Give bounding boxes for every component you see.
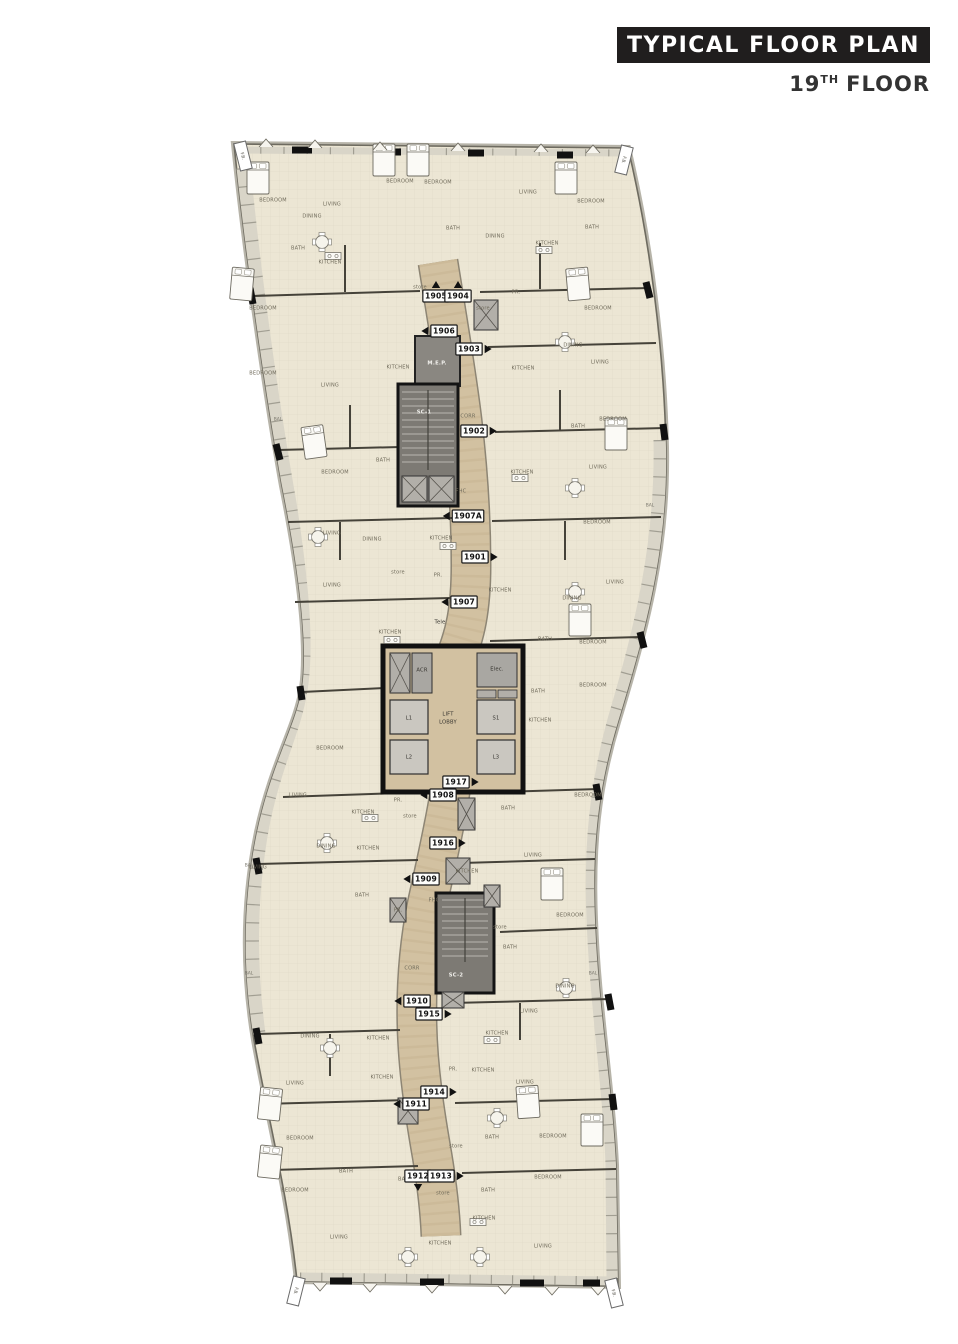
unit-number: 1902 xyxy=(463,427,485,436)
exterior-wall-chunk xyxy=(646,282,650,298)
room-label: KITCHEN xyxy=(485,1031,508,1037)
room-label: BEDROOM xyxy=(286,1136,314,1142)
room-label: BEDROOM xyxy=(249,306,277,312)
room-label: BAL xyxy=(245,971,254,977)
room-label: LIVING xyxy=(321,383,339,389)
room-label: KITCHEN xyxy=(535,241,558,247)
room-label: BEDROOM xyxy=(281,1188,309,1194)
balcony-chevron-bottom xyxy=(498,1286,512,1294)
room-label: LIVING xyxy=(516,1080,534,1086)
room-label: BEDROOM xyxy=(534,1175,562,1181)
bed-furniture xyxy=(569,604,591,636)
room-label: BATH xyxy=(585,225,599,231)
room-label: KITCHEN xyxy=(351,810,374,816)
room-label: store xyxy=(476,306,490,312)
room-label: KITCHEN xyxy=(386,365,409,371)
bed-furniture xyxy=(257,1087,282,1121)
room-label: LIVING xyxy=(591,360,609,366)
room-label: SC-1 xyxy=(417,410,432,416)
room-label: LIFT xyxy=(442,712,454,718)
room-label: BATH xyxy=(481,1188,495,1194)
room-label: BATH xyxy=(538,637,552,643)
room-label: KITCHEN xyxy=(528,718,551,724)
room-label: LIVING xyxy=(589,465,607,471)
exterior-wall-chunk xyxy=(276,444,280,460)
room-label: BEDROOM xyxy=(579,683,607,689)
room-label: PR. xyxy=(449,1067,458,1073)
room-label: SC-2 xyxy=(449,973,464,979)
unit-number: 1909 xyxy=(415,875,437,884)
room-label: BATH xyxy=(501,806,515,812)
kitchen-counter-furniture xyxy=(440,543,456,550)
room-label: BATH xyxy=(446,226,460,232)
room-label: KITCHEN xyxy=(429,536,452,542)
room-label: BEDROOM xyxy=(574,793,602,799)
room-label: LIVING xyxy=(323,583,341,589)
room-label: LIVING xyxy=(330,1235,348,1241)
unit-number: 1905 xyxy=(425,292,447,301)
kitchen-counter-furniture xyxy=(512,475,528,482)
unit-number: 1916 xyxy=(432,839,454,848)
room-label: LIVING xyxy=(606,580,624,586)
room-label: BEDROOM xyxy=(599,417,627,423)
room-label: L3 xyxy=(493,755,500,761)
room-label: BEDROOM xyxy=(249,371,277,377)
room-label: LIVING xyxy=(323,202,341,208)
exterior-wall-chunk xyxy=(640,632,644,648)
room-label: BAL xyxy=(245,863,254,869)
room-label: KITCHEN xyxy=(428,1241,451,1247)
room-label: CORR xyxy=(404,966,420,972)
room-label: DINING xyxy=(362,537,381,543)
unit-number: 1903 xyxy=(458,345,480,354)
room-label: BAL xyxy=(589,971,598,977)
exterior-wall-chunk xyxy=(300,686,302,700)
room-label: store xyxy=(493,925,507,931)
bed-furniture xyxy=(407,144,429,176)
room-label: BEDROOM xyxy=(584,306,612,312)
room-label: DINING xyxy=(300,1034,319,1040)
unit-number: 1914 xyxy=(423,1088,445,1097)
room-label: DINING xyxy=(563,343,582,349)
room-label: LIVING xyxy=(519,190,537,196)
bed-furniture xyxy=(516,1085,540,1118)
room-label: BEDROOM xyxy=(556,913,584,919)
room-label: Elec. xyxy=(490,667,504,673)
exterior-wall-chunk xyxy=(612,1094,614,1110)
bed-furniture xyxy=(605,418,627,450)
room-label: PR. xyxy=(434,573,443,579)
unit-number: 1913 xyxy=(430,1172,452,1181)
room-label: LIVING xyxy=(289,793,307,799)
floor-plan-page: TYPICAL FLOOR PLAN 19THFLOOR xyxy=(0,0,958,1344)
room-label: BEDROOM xyxy=(579,640,607,646)
room-label: FHC xyxy=(456,489,467,495)
room-label: L2 xyxy=(406,755,413,761)
room-label: BATH xyxy=(571,424,585,430)
unit-number: 1907A xyxy=(454,512,482,521)
fb-tag: F.B. xyxy=(287,1276,305,1306)
balcony-chevron-bottom xyxy=(363,1284,377,1292)
room-label: BATH xyxy=(376,458,390,464)
exterior-wall-chunk xyxy=(608,994,611,1010)
room-label: BEDROOM xyxy=(583,520,611,526)
bed-furniture xyxy=(555,162,577,194)
room-label: Tele xyxy=(434,620,446,626)
balcony-chevron-bottom xyxy=(591,1287,605,1295)
floor-plan-drawing: BEDROOMLIVINGDININGBATHKITCHENBEDROOMBED… xyxy=(0,0,958,1344)
unit-number: 1906 xyxy=(433,327,455,336)
room-label: DINING xyxy=(485,234,504,240)
room-label: KITCHEN xyxy=(510,470,533,476)
balcony-chevron-bottom xyxy=(545,1287,559,1295)
kitchen-counter-furniture xyxy=(484,1037,500,1044)
balcony-chevron-bottom xyxy=(425,1285,439,1293)
unit-number: 1917 xyxy=(445,778,467,787)
room-label: LIVING xyxy=(286,1081,304,1087)
unit-number: 1912 xyxy=(407,1172,429,1181)
room-label: BEDROOM xyxy=(259,198,287,204)
room-label: BEDROOM xyxy=(386,179,414,185)
room-label: KITCHEN xyxy=(356,846,379,852)
unit-number: 1907 xyxy=(453,598,475,607)
room-label: M.E.P. xyxy=(427,361,446,367)
room-label: BEDROOM xyxy=(539,1134,567,1140)
balcony-chevron-bottom xyxy=(313,1283,327,1291)
room-label: LOBBY xyxy=(439,720,457,726)
room-label: BATH xyxy=(291,246,305,252)
room-label: BATH xyxy=(485,1135,499,1141)
room-label: BEDROOM xyxy=(316,746,344,752)
unit-number: 1911 xyxy=(405,1100,427,1109)
room-label: PR. xyxy=(394,798,403,804)
bed-furniture xyxy=(541,868,563,900)
room-label: LIVING xyxy=(323,531,341,537)
room-label: BATH xyxy=(339,1169,353,1175)
room-label: KITCHEN xyxy=(472,1216,495,1222)
room-label: BAL xyxy=(646,503,655,509)
room-label: DINING xyxy=(316,844,335,850)
unit-number: 1904 xyxy=(447,292,469,301)
room-label: DINING xyxy=(302,214,321,220)
room-label: store xyxy=(403,814,417,820)
bed-furniture xyxy=(301,425,327,460)
staircase-sc2 xyxy=(436,893,494,993)
room-label: KITCHEN xyxy=(511,366,534,372)
unit-number: 1915 xyxy=(418,1010,440,1019)
staircase-sc1 xyxy=(398,384,458,506)
room-label: LIVING xyxy=(524,853,542,859)
unit-number: 1908 xyxy=(432,791,454,800)
room-label: BEDROOM xyxy=(321,470,349,476)
room-label: BEDROOM xyxy=(424,180,452,186)
room-label: BATH xyxy=(503,945,517,951)
bed-furniture xyxy=(230,267,255,301)
room-label: DINING xyxy=(555,984,574,990)
room-label: BAL xyxy=(274,417,283,423)
room-label: BEDROOM xyxy=(577,199,605,205)
room-label: ACR xyxy=(416,668,427,674)
room-label: KITCHEN xyxy=(366,1036,389,1042)
room-label: KITCHEN xyxy=(488,588,511,594)
room-label: FHC xyxy=(429,898,440,904)
bed-furniture xyxy=(566,267,591,301)
room-label: KITCHEN xyxy=(378,630,401,636)
room-label: DINING xyxy=(562,596,581,602)
room-label: store xyxy=(391,570,405,576)
unit-number: 1910 xyxy=(406,997,428,1006)
room-label: PR. xyxy=(394,908,403,914)
kitchen-counter-furniture xyxy=(536,247,552,254)
bed-furniture xyxy=(257,1145,282,1179)
kitchen-counter-furniture xyxy=(362,815,378,822)
unit-number: 1901 xyxy=(464,553,486,562)
room-label: KITCHEN xyxy=(471,1068,494,1074)
bed-furniture xyxy=(581,1114,603,1146)
room-label: LIVING xyxy=(534,1244,552,1250)
room-label: store xyxy=(436,1191,450,1197)
room-label: BATH xyxy=(355,893,369,899)
room-label: KITCHEN xyxy=(370,1075,393,1081)
exterior-wall-chunk xyxy=(663,424,665,440)
kitchen-counter-furniture xyxy=(325,253,341,260)
room-label: LIVING xyxy=(520,1009,538,1015)
room-label: S1 xyxy=(493,716,500,722)
room-label: L1 xyxy=(406,716,413,722)
room-label: KITCHEN xyxy=(455,869,478,875)
room-label: CORR xyxy=(460,414,476,420)
room-label: PR. xyxy=(512,290,521,296)
room-label: store xyxy=(449,1144,463,1150)
kitchen-counter-furniture xyxy=(384,637,400,644)
room-label: BATH xyxy=(531,689,545,695)
exterior-wall-chunk xyxy=(256,1028,259,1044)
room-label: KITCHEN xyxy=(318,260,341,266)
